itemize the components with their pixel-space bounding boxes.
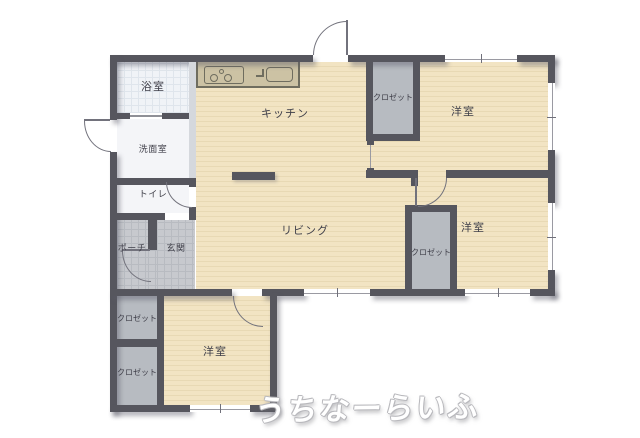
wall: [189, 207, 196, 220]
wall: [110, 55, 313, 62]
watermark: うちなーらいふ: [253, 382, 483, 430]
wall: [110, 289, 232, 296]
room-label-bedroom-s: 洋室: [170, 346, 260, 358]
window: [304, 289, 370, 296]
room-label-closet-e: クロゼット: [405, 247, 457, 259]
wall: [366, 134, 420, 141]
sink-basin-icon: [266, 67, 293, 82]
wall: [530, 289, 555, 296]
room-label-closet-ne: クロゼット: [367, 92, 419, 104]
stove-icon: [204, 66, 244, 84]
sink-icon: [254, 66, 296, 84]
stove-burner-icon: [224, 74, 232, 82]
room-label-porch: ポーチ: [112, 242, 152, 254]
sliding-door: [130, 115, 162, 117]
faucet-icon: [256, 75, 263, 77]
kitchen-partition: [232, 172, 275, 180]
wall-light: [189, 62, 196, 178]
floor-entrance: [157, 220, 194, 293]
opening-tick: [367, 141, 374, 145]
room-label-washroom: 洗面室: [117, 143, 189, 155]
window: [548, 203, 555, 270]
room-label-bedroom-e: 洋室: [430, 222, 516, 234]
room-label-bedroom-ne: 洋室: [420, 106, 506, 118]
room-label-entrance: 玄関: [156, 242, 196, 254]
room-label-bath: 浴室: [117, 81, 189, 93]
wall: [110, 405, 190, 412]
wall: [548, 55, 555, 83]
wall: [117, 113, 130, 119]
stove-burner-icon: [219, 69, 224, 74]
door-swing-arc: [313, 21, 347, 55]
step-line: [194, 220, 195, 289]
stove-burner-icon: [210, 74, 218, 82]
room-label-toilet: トイレ: [117, 188, 189, 200]
room-label-closet-w-lower: クロゼット: [111, 367, 163, 379]
floorplan: 浴室 洗面室 トイレ ポーチ 玄関 キッチン リビング 洋室 洋室 洋室 クロゼ…: [0, 0, 640, 438]
wall: [446, 170, 555, 178]
window: [445, 55, 517, 62]
door-leaf: [415, 178, 417, 206]
wall: [110, 339, 164, 347]
room-label-kitchen: キッチン: [240, 108, 330, 120]
window: [190, 405, 250, 412]
room-label-closet-w-upper: クロゼット: [111, 313, 163, 325]
window: [465, 289, 530, 296]
kitchen-counter: [196, 60, 300, 88]
wall: [348, 55, 445, 62]
wall: [262, 289, 304, 296]
wall: [366, 170, 418, 178]
room-label-living: リビング: [260, 225, 350, 237]
door-swing-arc: [84, 121, 111, 152]
window: [548, 83, 555, 150]
wall: [110, 55, 117, 120]
